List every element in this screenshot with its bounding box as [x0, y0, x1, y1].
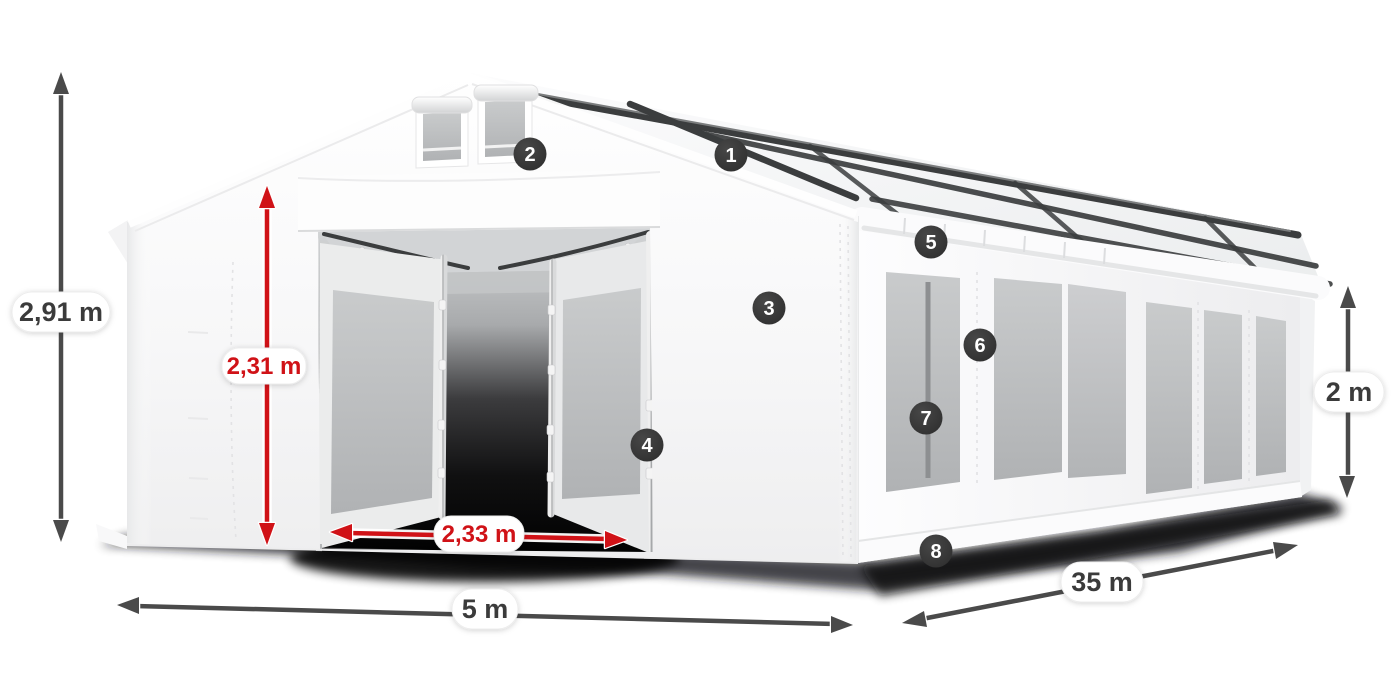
marker-2: 2: [514, 138, 547, 171]
svg-text:1: 1: [725, 145, 736, 167]
length-label: 35 m: [1071, 567, 1133, 597]
door-height-label: 2,31 m: [227, 353, 302, 380]
marker-3: 3: [753, 292, 786, 325]
dimension-total-height: 2,91 m: [12, 72, 110, 542]
svg-text:4: 4: [641, 435, 653, 457]
arrowhead-left: [117, 597, 139, 614]
right-flap-window: [562, 288, 641, 499]
arrowhead-down: [53, 520, 69, 542]
tent-product-diagram: 1 2 3 4 5 6 7 8 2,91 m 2,31 m 2,33 m: [0, 0, 1400, 700]
marker-1: 1: [715, 139, 748, 172]
dimension-side-height: 2 m: [1314, 286, 1384, 498]
arrowhead-up: [1340, 286, 1356, 308]
side-open-bay: [1068, 284, 1126, 478]
side-window-1: [886, 272, 960, 492]
marker-6: 6: [964, 329, 997, 362]
vent-roller: [412, 97, 472, 113]
svg-text:3: 3: [763, 298, 774, 320]
svg-text:8: 8: [930, 541, 941, 563]
marker-5: 5: [915, 226, 948, 259]
front-opening-interior: [306, 224, 661, 560]
total-height-label: 2,91 m: [19, 297, 103, 327]
side-height-label: 2 m: [1326, 377, 1373, 407]
side-window-2: [994, 278, 1062, 480]
marker-8: 8: [920, 535, 953, 568]
svg-text:6: 6: [974, 335, 985, 357]
vent-glass: [423, 112, 461, 161]
svg-text:2: 2: [524, 144, 535, 166]
marker-7: 7: [910, 402, 943, 435]
arrowhead-right: [831, 616, 853, 633]
svg-text:5: 5: [925, 232, 936, 254]
gable-width-label: 5 m: [462, 594, 509, 624]
svg-text:7: 7: [920, 408, 931, 430]
dimension-gable-width: 5 m: [117, 589, 853, 633]
door-width-label: 2,33 m: [442, 521, 517, 548]
marker-4: 4: [631, 429, 664, 462]
side-window-5: [1256, 316, 1286, 476]
side-window-3: [1146, 302, 1192, 494]
left-flap-window: [331, 290, 434, 514]
left-eave-overhang: [108, 220, 128, 264]
left-door-flap: [318, 243, 447, 549]
side-window-4: [1204, 310, 1242, 484]
rear-edge: [1300, 293, 1315, 497]
tent-diagram-canvas: 1 2 3 4 5 6 7 8 2,91 m 2,31 m 2,33 m: [0, 0, 1400, 700]
right-door-flap: [547, 240, 654, 555]
arrowhead-down: [1339, 476, 1355, 498]
arrowhead-left: [902, 611, 927, 627]
arrowhead-right: [1273, 542, 1298, 559]
gable-vent-left: [412, 97, 472, 168]
arrowhead-up: [53, 72, 69, 94]
vent-roller: [474, 85, 538, 101]
